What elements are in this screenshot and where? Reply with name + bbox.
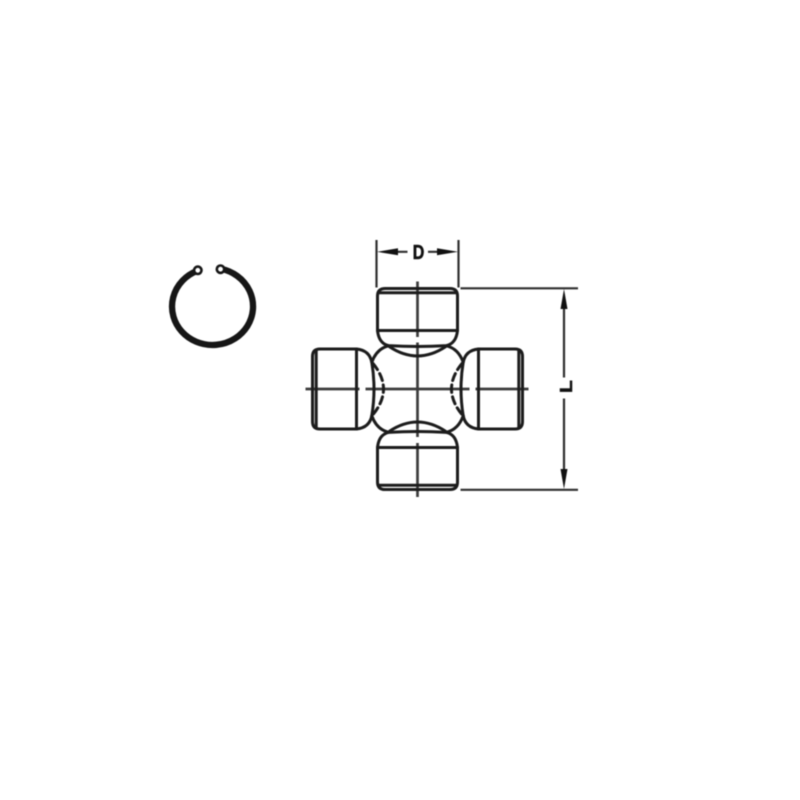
svg-text:D: D	[413, 240, 425, 263]
svg-text:L: L	[556, 380, 576, 393]
